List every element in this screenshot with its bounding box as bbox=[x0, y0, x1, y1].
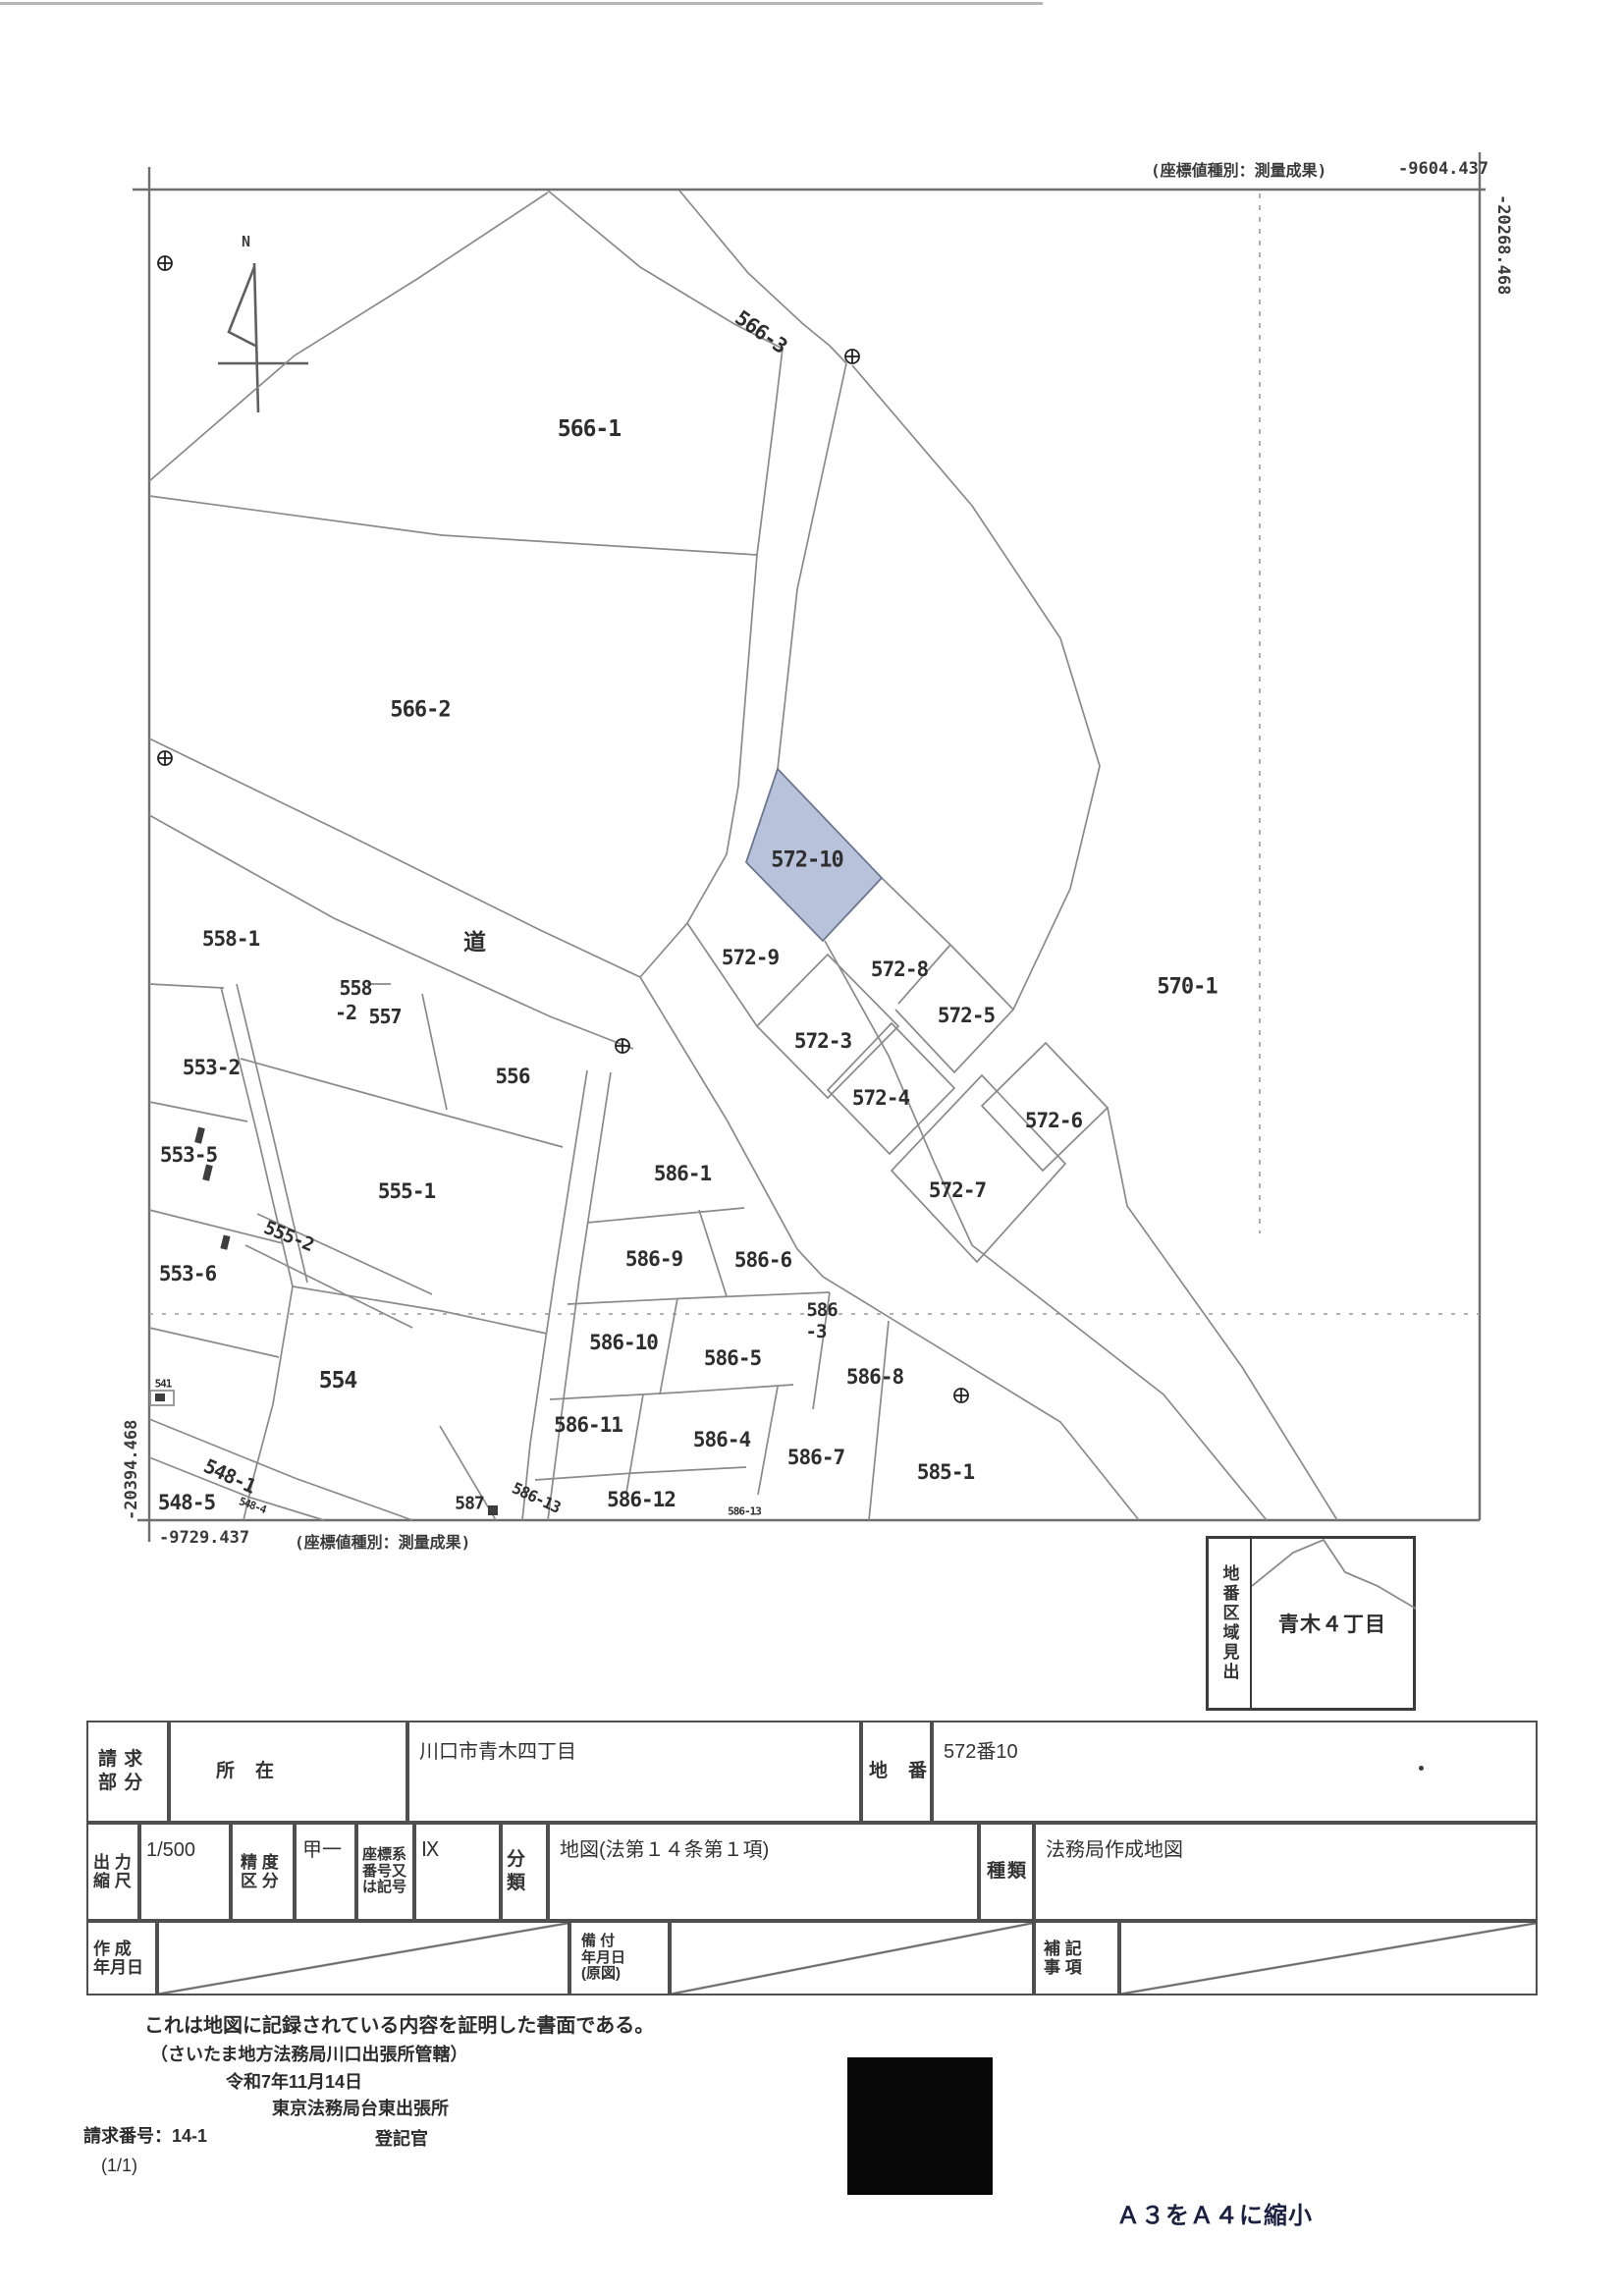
redaction-box bbox=[847, 2057, 993, 2195]
cell-coordsys-value: Ⅸ bbox=[414, 1823, 501, 1921]
reduction-note: Ａ３をＡ４に縮小 bbox=[1116, 2196, 1313, 2230]
cell-lot-value: 572番10 bbox=[932, 1721, 1538, 1823]
issue-date: 令和7年11月14日 bbox=[226, 2068, 362, 2094]
jurisdiction-note: （さいたま地方法務局川口出張所管轄） bbox=[150, 2041, 467, 2066]
parcel-label: 586-13 bbox=[728, 1505, 761, 1518]
parcel-label: 553-5 bbox=[160, 1143, 217, 1167]
grid-dashed-lines bbox=[149, 193, 1480, 1314]
cell-type-label: 種類 bbox=[979, 1823, 1034, 1921]
parcel-label: -2 bbox=[335, 1001, 356, 1024]
parcel-label: 572-7 bbox=[929, 1178, 986, 1202]
parcel-label: 586-6 bbox=[734, 1248, 791, 1272]
small-map-marks bbox=[155, 1127, 498, 1515]
north-arrow-icon bbox=[218, 263, 308, 412]
cell-request-part-label: 請 求 部 分 bbox=[86, 1721, 169, 1823]
parcel-label: 548-5 bbox=[158, 1491, 215, 1514]
parcel-label: 566-1 bbox=[558, 416, 621, 442]
parcel-label: 553-2 bbox=[183, 1056, 240, 1079]
cell-coordsys-label: 座標系 番号又 は記号 bbox=[356, 1823, 414, 1921]
parcel-label: 586-7 bbox=[787, 1446, 844, 1469]
coord-type-note-top: (座標値種別：測量成果) bbox=[1151, 157, 1326, 181]
cell-class-label: 分類 bbox=[501, 1823, 548, 1921]
cell-notes-label: 補 記 事 項 bbox=[1034, 1921, 1119, 1995]
index-map-area: 青木４丁目 bbox=[1252, 1539, 1413, 1708]
cell-notes-value-empty bbox=[1119, 1921, 1538, 1995]
coord-y-right: -20268.468 bbox=[1493, 194, 1513, 295]
parcel-label: 587 bbox=[455, 1494, 484, 1514]
parcel-label: 586-11 bbox=[554, 1413, 622, 1437]
cell-filed-label: 備 付 年月日 (原図) bbox=[569, 1921, 670, 1995]
parcel-label: 572-5 bbox=[938, 1004, 995, 1027]
parcel-label: 558 bbox=[339, 976, 371, 1000]
parcel-label: 554 bbox=[319, 1368, 357, 1394]
cell-precision-label: 精 度 区 分 bbox=[231, 1823, 295, 1921]
parcel-label: 586-1 bbox=[654, 1162, 711, 1185]
coord-type-note-bottom: (座標値種別：測量成果) bbox=[295, 1529, 470, 1553]
parcel-label: 556 bbox=[496, 1065, 530, 1088]
cell-created-label: 作 成 年月日 bbox=[86, 1921, 157, 1995]
issuing-office: 東京法務局台東出張所 bbox=[272, 2095, 449, 2120]
cell-type-value: 法務局作成地図 bbox=[1034, 1823, 1538, 1921]
cell-scale-value: 1/500 bbox=[139, 1823, 231, 1921]
north-label: N bbox=[242, 233, 250, 250]
parcel-label: 558-1 bbox=[202, 927, 259, 951]
cell-location-value: 川口市青木四丁目 bbox=[407, 1721, 861, 1823]
parcel-label: 586-9 bbox=[625, 1247, 682, 1271]
parcel-label: 572-6 bbox=[1025, 1109, 1082, 1132]
parcel-label: 572-9 bbox=[722, 946, 779, 969]
index-map-area-label: 青木４丁目 bbox=[1278, 1609, 1386, 1638]
parcel-label: 557 bbox=[368, 1005, 401, 1028]
cell-precision-value: 甲一 bbox=[295, 1823, 356, 1921]
parcel-label: 586-12 bbox=[607, 1488, 676, 1511]
parcel-label: 572-10 bbox=[771, 848, 842, 873]
parcel-label: 553-6 bbox=[159, 1262, 216, 1285]
parcel-boundaries bbox=[149, 191, 1337, 1520]
cell-location-label: 所 在 bbox=[169, 1721, 407, 1823]
coord-x-bottom: -9729.437 bbox=[159, 1528, 249, 1548]
parcel-label: 586-8 bbox=[846, 1365, 903, 1389]
cell-class-value: 地図(法第１４条第１項) bbox=[548, 1823, 979, 1921]
index-map-tab-label: 地番区域見出 bbox=[1217, 1564, 1242, 1682]
parcel-label: 586 bbox=[806, 1299, 837, 1321]
request-number: 請求番号：14-1 bbox=[83, 2122, 207, 2148]
cell-lot-label: 地 番 bbox=[861, 1721, 932, 1823]
cell-scale-label: 出 力 縮 尺 bbox=[86, 1823, 139, 1921]
registrar-label: 登記官 bbox=[375, 2125, 428, 2151]
parcel-label: 555-1 bbox=[378, 1179, 435, 1203]
index-map-box: 地番区域見出 青木４丁目 bbox=[1206, 1536, 1416, 1711]
parcel-label: 572-3 bbox=[794, 1029, 851, 1053]
certification-statement: これは地図に記録されている内容を証明した書面である。 bbox=[144, 2009, 654, 2038]
parcel-label: 585-1 bbox=[917, 1460, 974, 1484]
scan-dot-artifact bbox=[1419, 1766, 1424, 1771]
parcel-label: 541 bbox=[155, 1378, 172, 1391]
parcel-label: 道 bbox=[463, 923, 485, 957]
cell-created-value-empty bbox=[157, 1921, 569, 1995]
cell-filed-value-empty bbox=[670, 1921, 1034, 1995]
parcel-label: 570-1 bbox=[1157, 975, 1217, 1000]
coord-y-left: -20394.468 bbox=[122, 1420, 141, 1520]
parcel-label: 586-4 bbox=[693, 1428, 750, 1451]
parcel-label: 586-5 bbox=[704, 1346, 761, 1370]
page-number: (1/1) bbox=[101, 2156, 137, 2176]
parcel-label: 586-10 bbox=[589, 1331, 658, 1354]
parcel-label: -3 bbox=[806, 1321, 827, 1342]
scanned-cadastral-certificate: 566-3566-1566-2572-10572-9572-8572-5572-… bbox=[0, 0, 1623, 2296]
coord-x-top: -9604.437 bbox=[1398, 159, 1488, 179]
parcel-label: 572-8 bbox=[871, 957, 928, 981]
parcel-label: 566-2 bbox=[390, 698, 450, 723]
parcel-label: 572-4 bbox=[852, 1086, 909, 1110]
index-map-tab: 地番区域見出 bbox=[1209, 1539, 1252, 1708]
